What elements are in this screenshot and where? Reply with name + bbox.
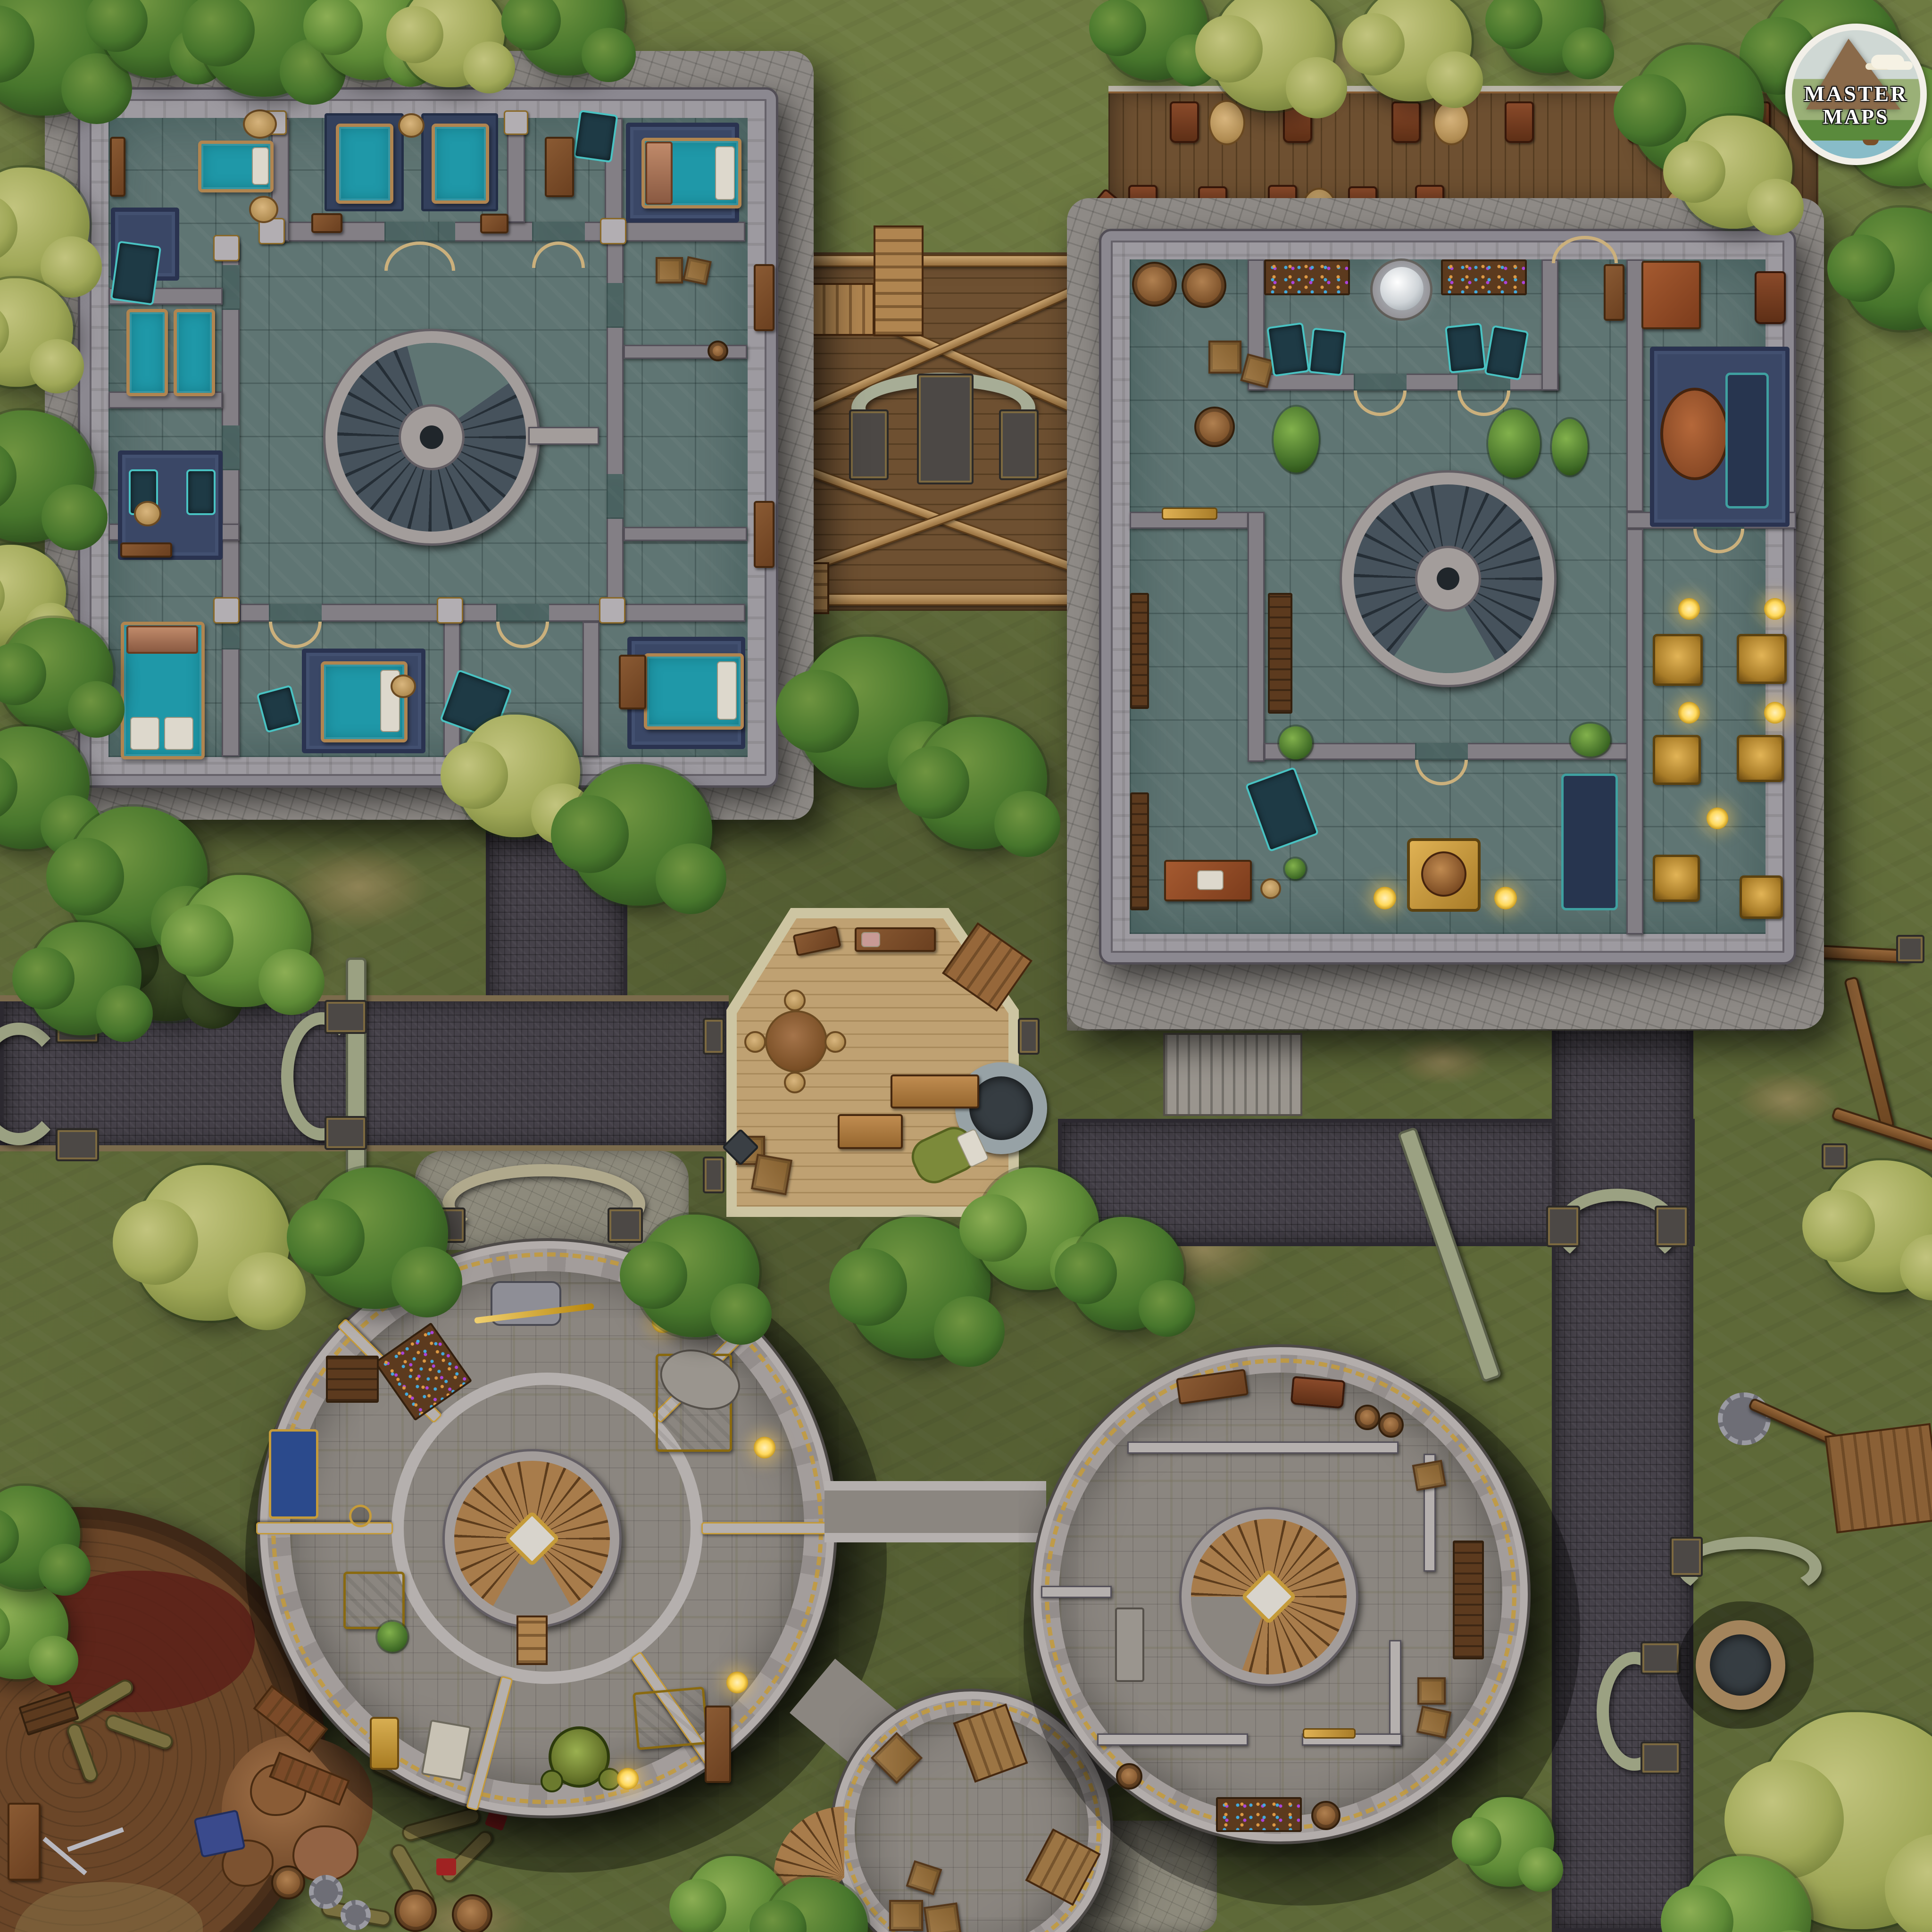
- parapet-post: [325, 1116, 367, 1150]
- wall: [1626, 259, 1643, 512]
- door-gap: [607, 474, 624, 519]
- lantern: [1678, 598, 1700, 620]
- door-gap: [384, 222, 455, 241]
- terrace-chair: [1170, 101, 1199, 143]
- radial-wall: [701, 1522, 838, 1534]
- tree: [1104, 0, 1207, 80]
- battle-map: MASTER MAPS: [0, 0, 1932, 1932]
- crystal-moon: [1380, 267, 1424, 310]
- crate: [751, 1154, 792, 1195]
- wall: [583, 622, 600, 757]
- parapet-post: [1670, 1537, 1703, 1577]
- spiral-hole: [420, 425, 443, 449]
- door-gap: [532, 222, 585, 241]
- arch-block: [999, 409, 1039, 480]
- wall: [624, 527, 747, 541]
- oval-table: [134, 501, 161, 526]
- tree: [1679, 116, 1792, 229]
- wall-pillar: [599, 597, 625, 624]
- bench: [120, 542, 172, 558]
- wall-pillar: [437, 597, 463, 624]
- teal-chair: [186, 469, 216, 515]
- crate: [1417, 1677, 1446, 1705]
- barrel: [1194, 407, 1235, 447]
- flower-pot: [1285, 858, 1306, 879]
- bed: [432, 124, 489, 204]
- wall-pillar: [504, 110, 528, 135]
- crate: [889, 1900, 923, 1931]
- ladder-shelf: [1130, 792, 1149, 910]
- tree: [1358, 0, 1472, 101]
- dirt-patch: [1736, 1071, 1840, 1127]
- bed: [174, 309, 215, 396]
- road-vertical-east: [1552, 999, 1693, 1932]
- oval-table: [391, 675, 416, 698]
- lounge-bed: [110, 241, 162, 306]
- depot-corridor: [824, 1481, 1046, 1542]
- stone-slab-table: [1115, 1607, 1144, 1682]
- spiral-stair-tail: [516, 1616, 548, 1665]
- dresser: [545, 137, 574, 197]
- tree: [0, 1486, 80, 1590]
- terrace-table: [1208, 100, 1245, 145]
- wall-pillar: [600, 218, 626, 244]
- barrel: [1116, 1763, 1142, 1790]
- planter: [1552, 419, 1588, 475]
- tree: [915, 717, 1047, 849]
- tower-wall: [1097, 1733, 1248, 1746]
- barrel: [1311, 1801, 1341, 1830]
- cart-wheel: [1718, 1392, 1771, 1445]
- round-table: [765, 1010, 827, 1073]
- wall-bench: [110, 137, 125, 197]
- bed-headboard: [645, 142, 673, 205]
- tree: [571, 764, 712, 906]
- tree: [637, 1215, 759, 1337]
- brazier: [726, 1672, 748, 1693]
- tree: [1500, 0, 1604, 73]
- barrel: [1378, 1412, 1404, 1438]
- dresser: [1641, 261, 1701, 329]
- radial-wall: [256, 1522, 393, 1534]
- chair: [1755, 271, 1786, 324]
- stool: [824, 1031, 846, 1053]
- planter: [1274, 407, 1319, 473]
- door-gap: [222, 265, 240, 310]
- bed-pillow: [715, 146, 735, 200]
- tower-wall: [1041, 1586, 1112, 1598]
- logo-scene: MASTER MAPS: [1792, 30, 1920, 158]
- parapet-post: [1546, 1206, 1580, 1247]
- gate-post: [703, 1157, 724, 1193]
- gold-statue: [1740, 875, 1783, 919]
- gold-statue: [1653, 634, 1703, 686]
- barrel: [271, 1865, 305, 1899]
- spiral-stub-wall: [528, 427, 599, 445]
- teal-bench: [1266, 322, 1310, 377]
- scaffold-post: [1822, 1143, 1848, 1169]
- tall-bookshelf: [1453, 1541, 1484, 1659]
- gate-post: [608, 1207, 643, 1243]
- gate-post: [1018, 1018, 1040, 1055]
- tree: [28, 922, 142, 1035]
- brazier: [754, 1437, 775, 1458]
- leather-bench: [1291, 1376, 1346, 1409]
- tree: [1844, 208, 1932, 330]
- planter: [1279, 726, 1312, 759]
- wall: [1248, 512, 1265, 762]
- plaza-stairs: [1163, 1033, 1302, 1116]
- scaffold-beam: [1844, 976, 1895, 1130]
- open-book: [1197, 870, 1224, 890]
- bush: [1465, 1797, 1554, 1887]
- arch-block: [917, 374, 974, 484]
- lantern: [1764, 598, 1786, 620]
- cloud-icon: [1871, 55, 1904, 69]
- door-gap: [1415, 743, 1468, 760]
- parapet-post: [56, 1128, 99, 1161]
- ladder-shelf: [1268, 593, 1292, 714]
- gold-statue: [1653, 855, 1700, 902]
- door-gap: [269, 604, 322, 622]
- stool: [744, 1031, 766, 1053]
- boat-icon: [1863, 140, 1879, 145]
- wooden-stairs: [874, 225, 924, 336]
- door-gap: [222, 425, 240, 470]
- bed: [336, 124, 393, 204]
- arcane-table: [343, 1572, 405, 1629]
- gate-post: [703, 1018, 724, 1055]
- stool: [784, 1072, 806, 1093]
- lantern: [1707, 808, 1728, 829]
- wine-rack: [1441, 259, 1527, 295]
- barrel: [708, 341, 728, 361]
- side-table: [311, 213, 342, 233]
- tree: [1071, 1217, 1184, 1330]
- oval-table: [1660, 388, 1729, 480]
- door-gap: [607, 283, 624, 328]
- bed-pillow: [717, 661, 737, 720]
- scribe-desk: [269, 1429, 318, 1519]
- bed-pillow: [130, 717, 159, 750]
- teal-bench: [1445, 323, 1486, 374]
- bookshelf: [326, 1356, 379, 1403]
- counter: [754, 501, 774, 568]
- gear: [341, 1900, 371, 1930]
- pew-bench: [8, 1803, 41, 1881]
- deck-log: [778, 255, 1101, 267]
- tower-wall: [1127, 1441, 1399, 1454]
- blue-couch: [1725, 373, 1769, 508]
- parapet-post: [1641, 1641, 1681, 1674]
- wall: [624, 345, 747, 359]
- oval-table: [398, 113, 425, 138]
- scaffold-post: [1896, 935, 1924, 963]
- gold-statue: [1653, 735, 1701, 785]
- crate: [656, 257, 683, 283]
- crate: [924, 1902, 961, 1932]
- gold-chair: [370, 1717, 399, 1770]
- wall: [1626, 529, 1643, 934]
- master-maps-logo: MASTER MAPS: [1785, 24, 1927, 165]
- gear: [309, 1875, 343, 1909]
- tree: [179, 875, 311, 1007]
- wood-rack: [1824, 1423, 1932, 1533]
- stool: [784, 990, 806, 1011]
- red-banner: [436, 1858, 456, 1875]
- planter: [1488, 409, 1540, 478]
- workbench: [838, 1114, 903, 1149]
- teal-chair: [573, 110, 618, 163]
- wine-rack: [1264, 259, 1350, 295]
- door-gap: [1354, 374, 1407, 391]
- tree: [1821, 1160, 1932, 1292]
- crate: [683, 256, 712, 285]
- brazier: [617, 1768, 639, 1790]
- wall-pillar: [213, 235, 240, 261]
- oval-table: [249, 196, 278, 223]
- barrel: [394, 1890, 437, 1932]
- workbench: [891, 1074, 979, 1108]
- gold-bench: [1162, 508, 1217, 520]
- parapet-post: [1655, 1206, 1689, 1247]
- gold-bench: [1303, 1728, 1356, 1739]
- dirt-patch: [1396, 1038, 1491, 1085]
- blue-couch: [1561, 774, 1618, 910]
- lantern: [1764, 702, 1786, 724]
- bed: [126, 309, 168, 396]
- armillary: [349, 1505, 372, 1527]
- barrel: [1355, 1405, 1380, 1430]
- wine-rack: [1216, 1797, 1302, 1832]
- crate: [1208, 341, 1241, 374]
- dark-well: [1696, 1620, 1785, 1710]
- bed-headboard: [126, 625, 198, 654]
- logo-text-line1: MASTER: [1792, 81, 1920, 106]
- crate: [1412, 1460, 1447, 1491]
- barrel: [1182, 263, 1226, 308]
- parapet-post: [1641, 1741, 1681, 1774]
- wall: [1541, 259, 1558, 391]
- side-table: [1604, 264, 1624, 321]
- side-table: [480, 214, 508, 233]
- dresser: [619, 655, 646, 709]
- tower-wall: [1389, 1640, 1401, 1746]
- teal-bench: [1308, 327, 1347, 376]
- parapet-post: [325, 1000, 367, 1034]
- logo-text-line2: MAPS: [1792, 105, 1920, 129]
- orb-device-pod: [541, 1770, 563, 1792]
- lantern: [1374, 887, 1396, 909]
- arch-block: [849, 409, 889, 480]
- bed-pillow: [252, 147, 269, 185]
- tree: [1212, 0, 1335, 111]
- arcane-table: [633, 1687, 709, 1750]
- tree: [134, 1165, 290, 1321]
- gold-statue: [1737, 634, 1787, 684]
- spiral-hole: [1437, 567, 1459, 590]
- oval-table: [243, 109, 277, 139]
- ladder-shelf: [1130, 593, 1149, 709]
- potted-plant: [377, 1622, 408, 1652]
- basin-bowl: [1421, 851, 1466, 897]
- tree: [401, 0, 505, 87]
- bed-pillow: [164, 717, 193, 750]
- dirt-patch: [288, 844, 429, 929]
- counter: [754, 264, 774, 331]
- terrace-chair: [1505, 101, 1534, 143]
- gold-statue: [1737, 735, 1784, 782]
- door-gap: [496, 604, 549, 622]
- barrel: [452, 1894, 492, 1932]
- bench: [705, 1706, 731, 1783]
- lantern: [1494, 887, 1517, 909]
- wall: [222, 241, 240, 757]
- tree: [307, 1167, 448, 1309]
- tree: [0, 618, 113, 731]
- barrel: [1132, 262, 1177, 307]
- lantern: [1678, 702, 1700, 724]
- stool: [1260, 878, 1281, 899]
- cot-pillow: [861, 932, 880, 947]
- planter: [1571, 724, 1610, 757]
- terrace-chair: [1391, 101, 1421, 143]
- wall-pillar: [213, 597, 240, 624]
